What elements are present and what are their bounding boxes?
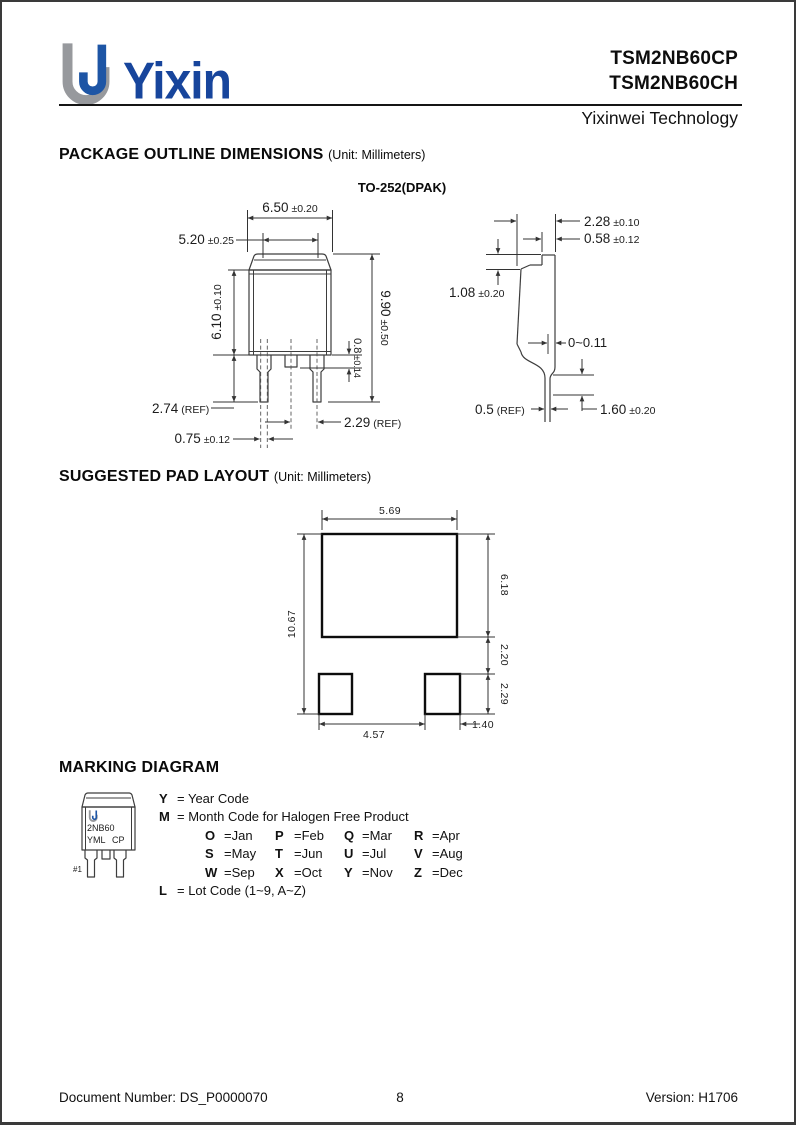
- dim-side-flash: 0~0.11: [568, 335, 607, 350]
- marking-package-drawing: 2NB60 YMLCP #1: [73, 793, 135, 877]
- pin1-label: #1: [73, 865, 82, 874]
- dim-pad-small-height: 2.29: [498, 683, 510, 705]
- dim-front-lead-width: 0.75±0.12: [175, 431, 231, 446]
- month-code: X: [275, 865, 294, 883]
- month-name: =Feb: [294, 828, 344, 846]
- legend-month-line: M = Month Code for Halogen Free Product: [159, 809, 579, 827]
- month-code: W: [205, 865, 224, 883]
- month-name: =Apr: [432, 828, 579, 846]
- legend-code: M: [159, 809, 177, 827]
- month-name: =Dec: [432, 865, 579, 883]
- dim-pad-total-height: 10.67: [286, 610, 298, 638]
- dim-front-top-width: 6.50±0.20: [262, 200, 318, 215]
- dim-pad-small-width: 1.40: [472, 719, 494, 731]
- legend-year-line: Y = Year Code: [159, 791, 579, 809]
- document-number: Document Number: DS_P0000070: [59, 1090, 268, 1105]
- month-code: R: [414, 828, 432, 846]
- legend-code: Y: [159, 791, 177, 809]
- dim-side-lead-thickness: 0.5(REF): [475, 402, 525, 417]
- month-code: Q: [344, 828, 362, 846]
- month-row-1: O=Jan P=Feb Q=Mar R=Apr: [205, 828, 579, 846]
- month-row-3: W=Sep X=Oct Y=Nov Z=Dec: [205, 865, 579, 883]
- dim-front-total-height: 9.90±0.50: [378, 290, 393, 346]
- dim-pad-gap: 2.20: [498, 644, 510, 666]
- pad-layout-drawing: 5.69 10.67 6.18 2.20 2.29 4.57: [286, 505, 510, 741]
- dim-side-tab-step: 1.08±0.20: [449, 285, 505, 300]
- dim-pad-big-width: 5.69: [379, 505, 401, 517]
- technical-drawings: 6.50±0.20 5.20±0.25 6.10±0.10 2.74(REF) …: [2, 2, 796, 1125]
- month-code: V: [414, 846, 432, 864]
- month-name: =Oct: [294, 865, 344, 883]
- month-name: =May: [224, 846, 275, 864]
- month-name: =Jul: [362, 846, 414, 864]
- legend-code: L: [159, 883, 177, 901]
- dim-front-body-height: 6.10±0.10: [209, 284, 224, 340]
- month-name: =Aug: [432, 846, 579, 864]
- month-code: S: [205, 846, 224, 864]
- dim-side-thickness: 2.28±0.10: [584, 214, 640, 229]
- month-code: Y: [344, 865, 362, 883]
- marking-legend: Y = Year Code M = Month Code for Halogen…: [159, 791, 579, 901]
- month-code: P: [275, 828, 294, 846]
- dim-front-mid-lead: 0.8±0.14: [351, 338, 363, 378]
- month-name: =Mar: [362, 828, 414, 846]
- month-name: =Sep: [224, 865, 275, 883]
- marking-code-text: YMLCP: [87, 835, 125, 845]
- legend-desc: = Lot Code (1~9, A~Z): [177, 883, 306, 901]
- datasheet-page: Yixin TSM2NB60CP TSM2NB60CH Yixinwei Tec…: [0, 0, 796, 1125]
- front-view-drawing: 6.50±0.20 5.20±0.25 6.10±0.10 2.74(REF) …: [152, 200, 401, 448]
- month-name: =Jun: [294, 846, 344, 864]
- month-name: =Jan: [224, 828, 275, 846]
- dim-front-lead-pitch: 2.29(REF): [344, 415, 401, 430]
- month-code: T: [275, 846, 294, 864]
- side-view-drawing: 2.28±0.10 0.58±0.12 1.08±0.20 0~0.11 1.6…: [449, 214, 656, 422]
- marking-device-text: 2NB60: [87, 823, 115, 833]
- dim-pad-big-height: 6.18: [498, 574, 510, 596]
- month-name: =Nov: [362, 865, 414, 883]
- dim-front-lead-length: 2.74(REF): [152, 401, 209, 416]
- month-code: U: [344, 846, 362, 864]
- dim-side-lead-bend: 1.60±0.20: [600, 402, 656, 417]
- legend-lot-line: L = Lot Code (1~9, A~Z): [159, 883, 579, 901]
- dim-side-tab-thickness: 0.58±0.12: [584, 231, 640, 246]
- dim-front-inner-width: 5.20±0.25: [179, 232, 235, 247]
- legend-desc: = Year Code: [177, 791, 249, 809]
- legend-desc: = Month Code for Halogen Free Product: [177, 809, 409, 827]
- month-code: O: [205, 828, 224, 846]
- dim-pad-spacing: 4.57: [363, 729, 385, 741]
- version: Version: H1706: [646, 1090, 738, 1105]
- month-code: Z: [414, 865, 432, 883]
- month-row-2: S=May T=Jun U=Jul V=Aug: [205, 846, 579, 864]
